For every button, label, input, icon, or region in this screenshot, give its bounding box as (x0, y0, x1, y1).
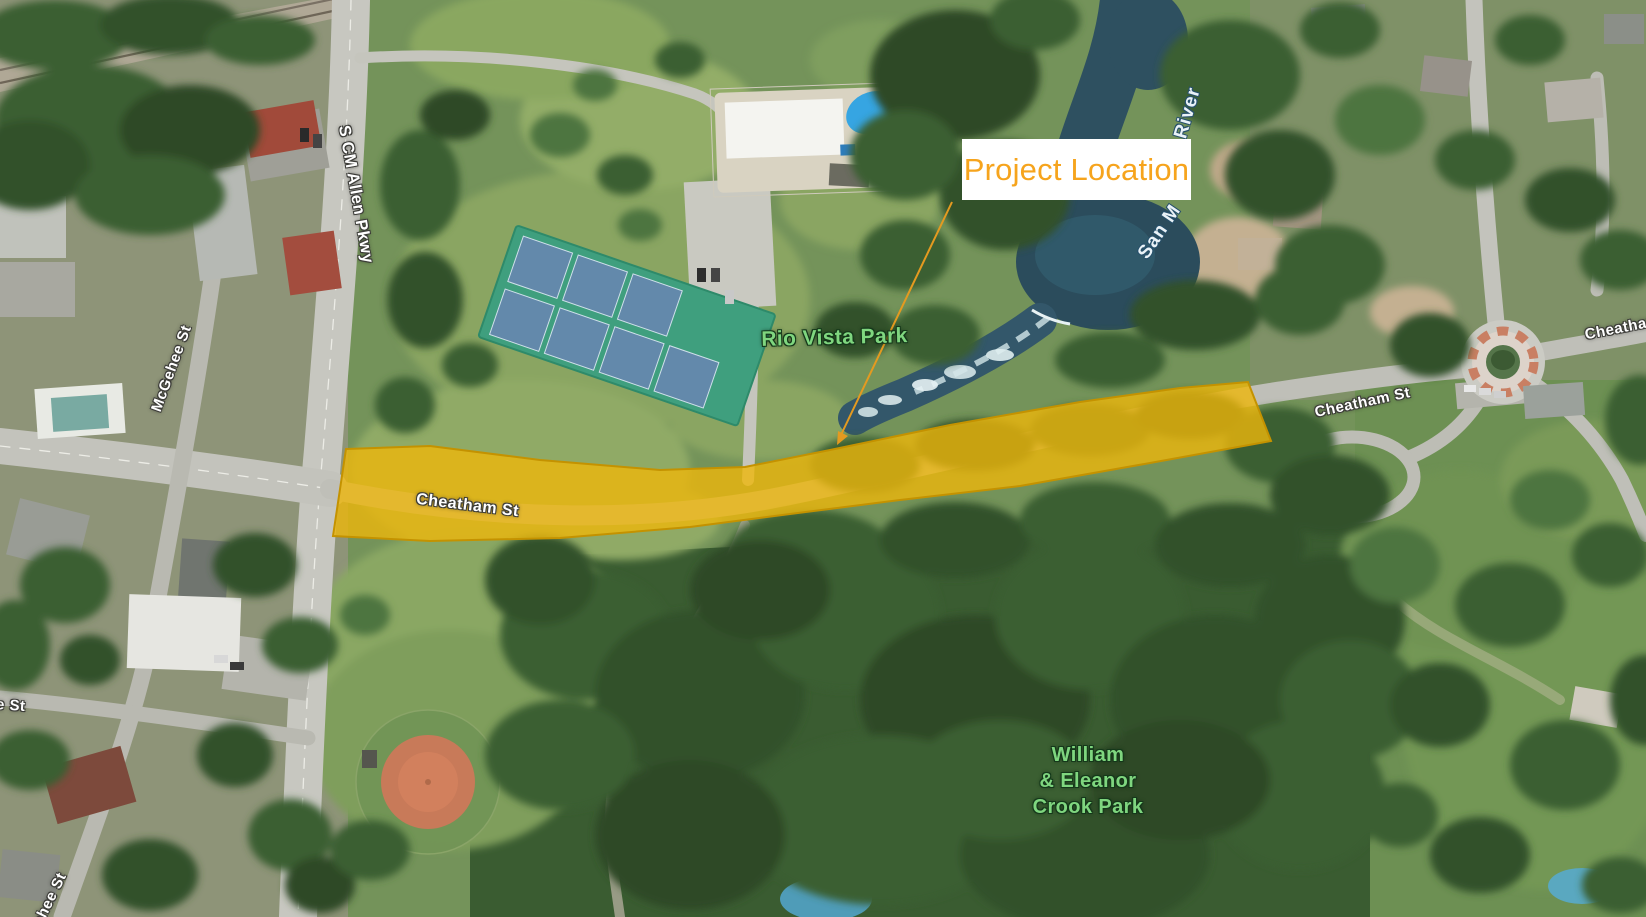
project-location-text: Project Location (964, 152, 1190, 188)
project-location-callout: Project Location (962, 139, 1191, 200)
field-shed (362, 750, 377, 768)
pool-building-roof (725, 98, 845, 158)
map-canvas: S CM Allen Pkwy McGehee St McGehee St e … (0, 0, 1646, 917)
aerial-basemap (0, 0, 1646, 917)
